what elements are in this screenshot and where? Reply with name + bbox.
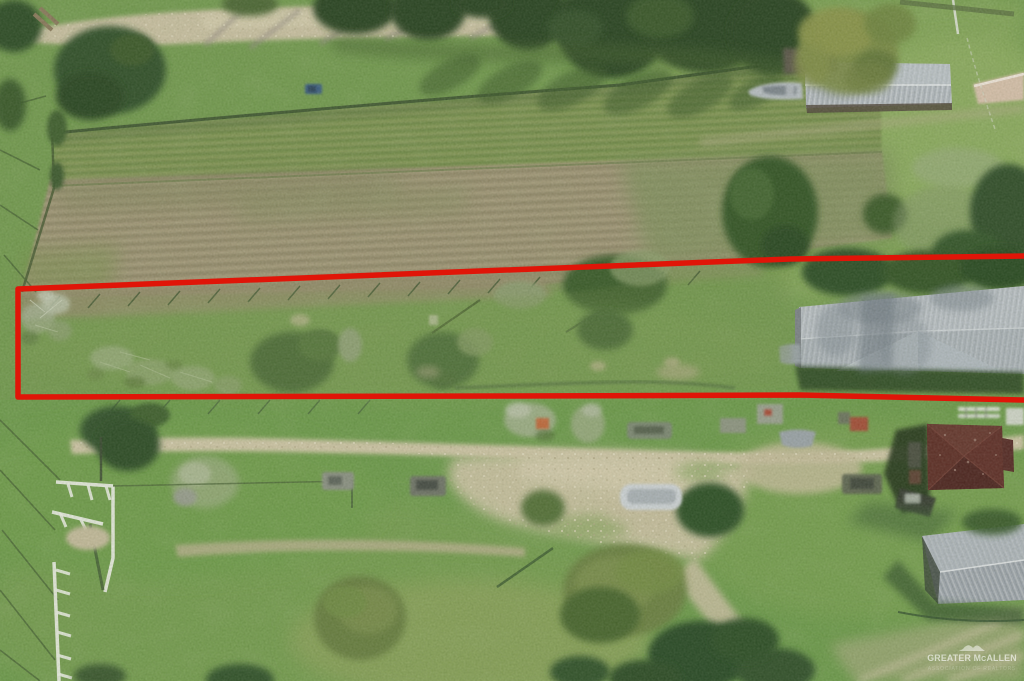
- svg-text:ASSOCIATION OF REALTORS: ASSOCIATION OF REALTORS: [928, 666, 1016, 672]
- svg-text:GREATER MCALLEN: GREATER MCALLEN: [927, 653, 1017, 663]
